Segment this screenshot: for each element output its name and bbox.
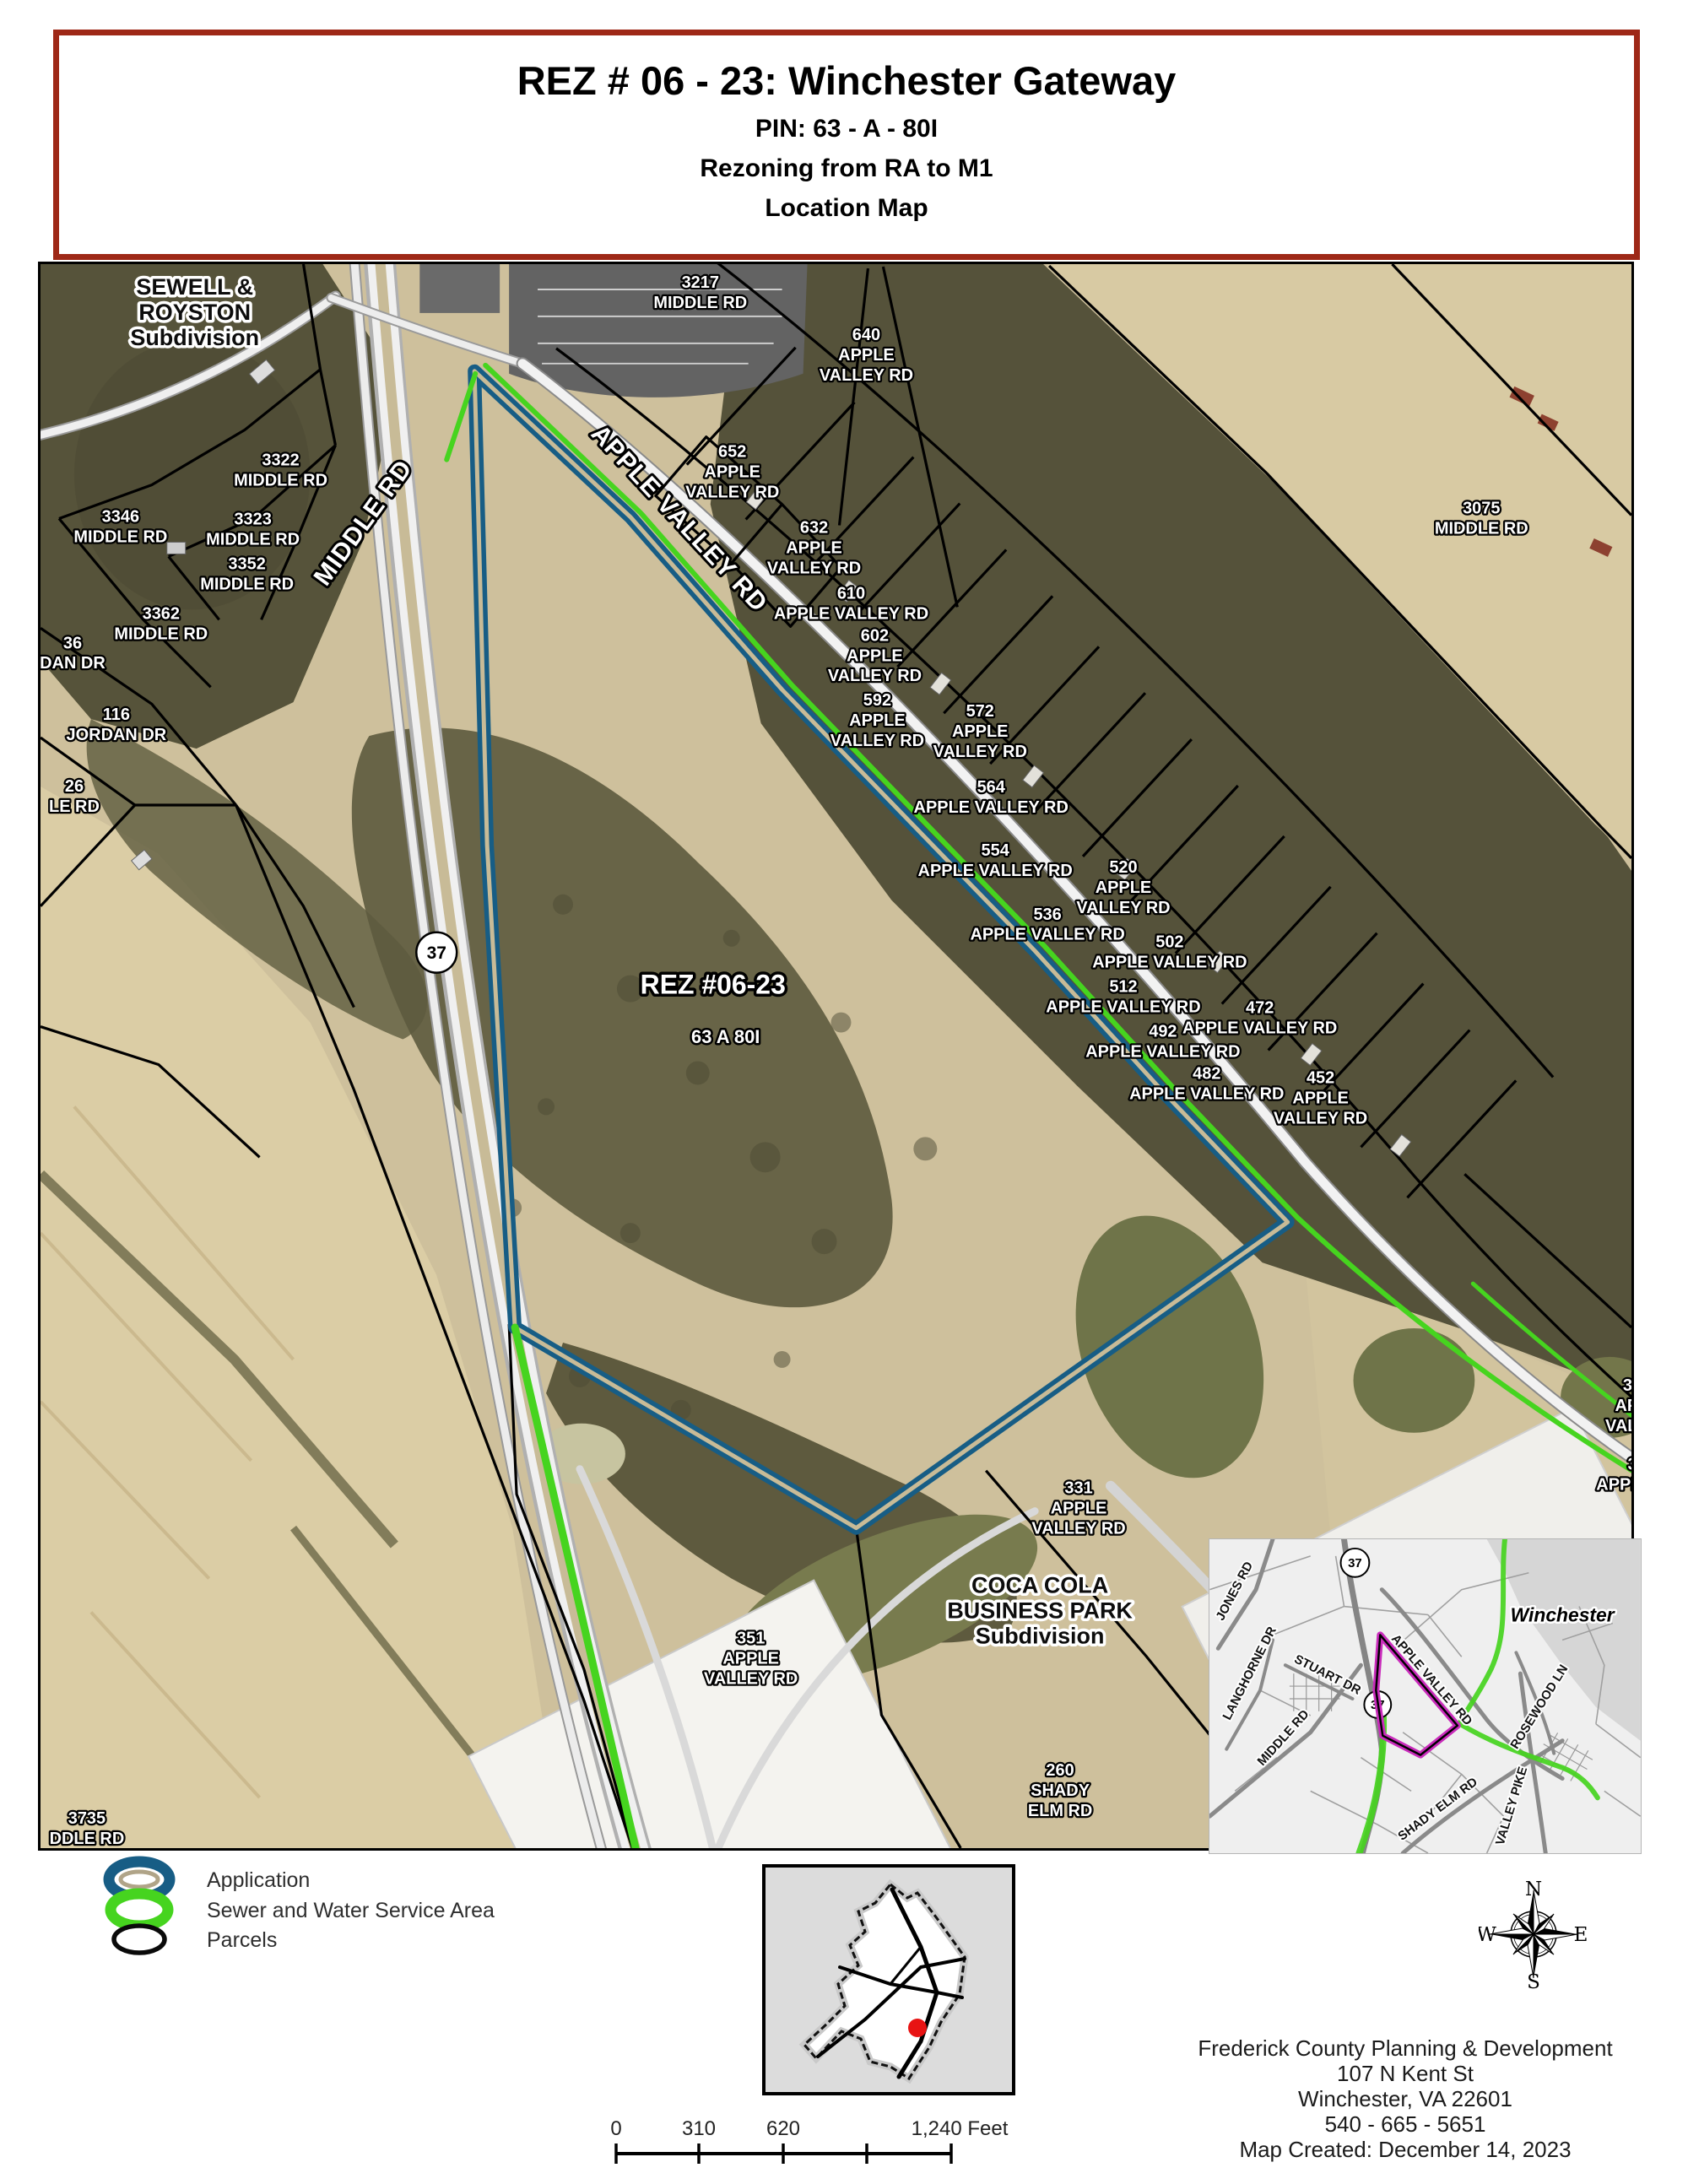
credits-block: Frederick County Planning & Development … bbox=[1169, 2035, 1642, 2162]
credits-street: 107 N Kent St bbox=[1169, 2061, 1642, 2086]
county-locator-map bbox=[762, 1864, 1015, 2095]
title-box: REZ # 06 - 23: Winchester Gateway PIN: 6… bbox=[53, 30, 1640, 260]
maptype-subtitle: Location Map bbox=[59, 188, 1634, 228]
scale-bar: 0 310 620 1,240 Feet bbox=[591, 2110, 1063, 2181]
credits-agency: Frederick County Planning & Development bbox=[1169, 2035, 1642, 2061]
compass-e: E bbox=[1574, 1924, 1588, 1946]
legend-parcels-label: Parcels bbox=[207, 1928, 277, 1952]
compass-n: N bbox=[1525, 1879, 1542, 1900]
inset-route37-shield-top: 37 bbox=[1341, 1549, 1370, 1577]
rez-area-label: REZ #06-23 bbox=[641, 970, 786, 1000]
legend: Application Sewer and Water Service Area… bbox=[80, 1852, 620, 1962]
compass-rose: N E S W bbox=[1479, 1879, 1588, 1989]
legend-application-label: Application bbox=[207, 1868, 310, 1892]
compass-s: S bbox=[1527, 1971, 1540, 1989]
pin-subtitle: PIN: 63 - A - 80I bbox=[59, 109, 1634, 149]
map-document-page: REZ # 06 - 23: Winchester Gateway PIN: 6… bbox=[0, 0, 1688, 2184]
scale-tick-620: 620 bbox=[766, 2117, 800, 2140]
pin-area-label: 63 A 80I bbox=[691, 1026, 760, 1047]
compass-w: W bbox=[1479, 1924, 1496, 1946]
winchester-city-label: Winchester bbox=[1511, 1604, 1615, 1626]
credits-date: Map Created: December 14, 2023 bbox=[1169, 2137, 1642, 2162]
credits-city: Winchester, VA 22601 bbox=[1169, 2086, 1642, 2111]
rezoning-subtitle: Rezoning from RA to M1 bbox=[59, 149, 1634, 188]
legend-sewer-symbol bbox=[111, 1894, 168, 1926]
legend-parcels-symbol bbox=[114, 1926, 165, 1953]
scale-end-label: 1,240 Feet bbox=[912, 2117, 1009, 2140]
credits-phone: 540 - 665 - 5651 bbox=[1169, 2111, 1642, 2137]
location-dot bbox=[908, 2019, 927, 2037]
scale-tick-0: 0 bbox=[610, 2117, 621, 2140]
compass-cardinal-points bbox=[1490, 1890, 1577, 1978]
svg-text:37: 37 bbox=[1348, 1557, 1362, 1570]
page-title: REZ # 06 - 23: Winchester Gateway bbox=[59, 57, 1634, 104]
scale-tick-310: 310 bbox=[682, 2117, 716, 2140]
svg-text:37: 37 bbox=[427, 943, 446, 963]
legend-sewer-label: Sewer and Water Service Area bbox=[207, 1899, 495, 1922]
subdivision-label-sewell: SEWELL &ROYSTONSubdivision bbox=[130, 274, 259, 350]
vicinity-inset-map: 37 37 Winchester JONES RDLANGHORNE DRSTU… bbox=[1209, 1538, 1642, 1854]
route-37-shield: 37 bbox=[416, 933, 457, 973]
